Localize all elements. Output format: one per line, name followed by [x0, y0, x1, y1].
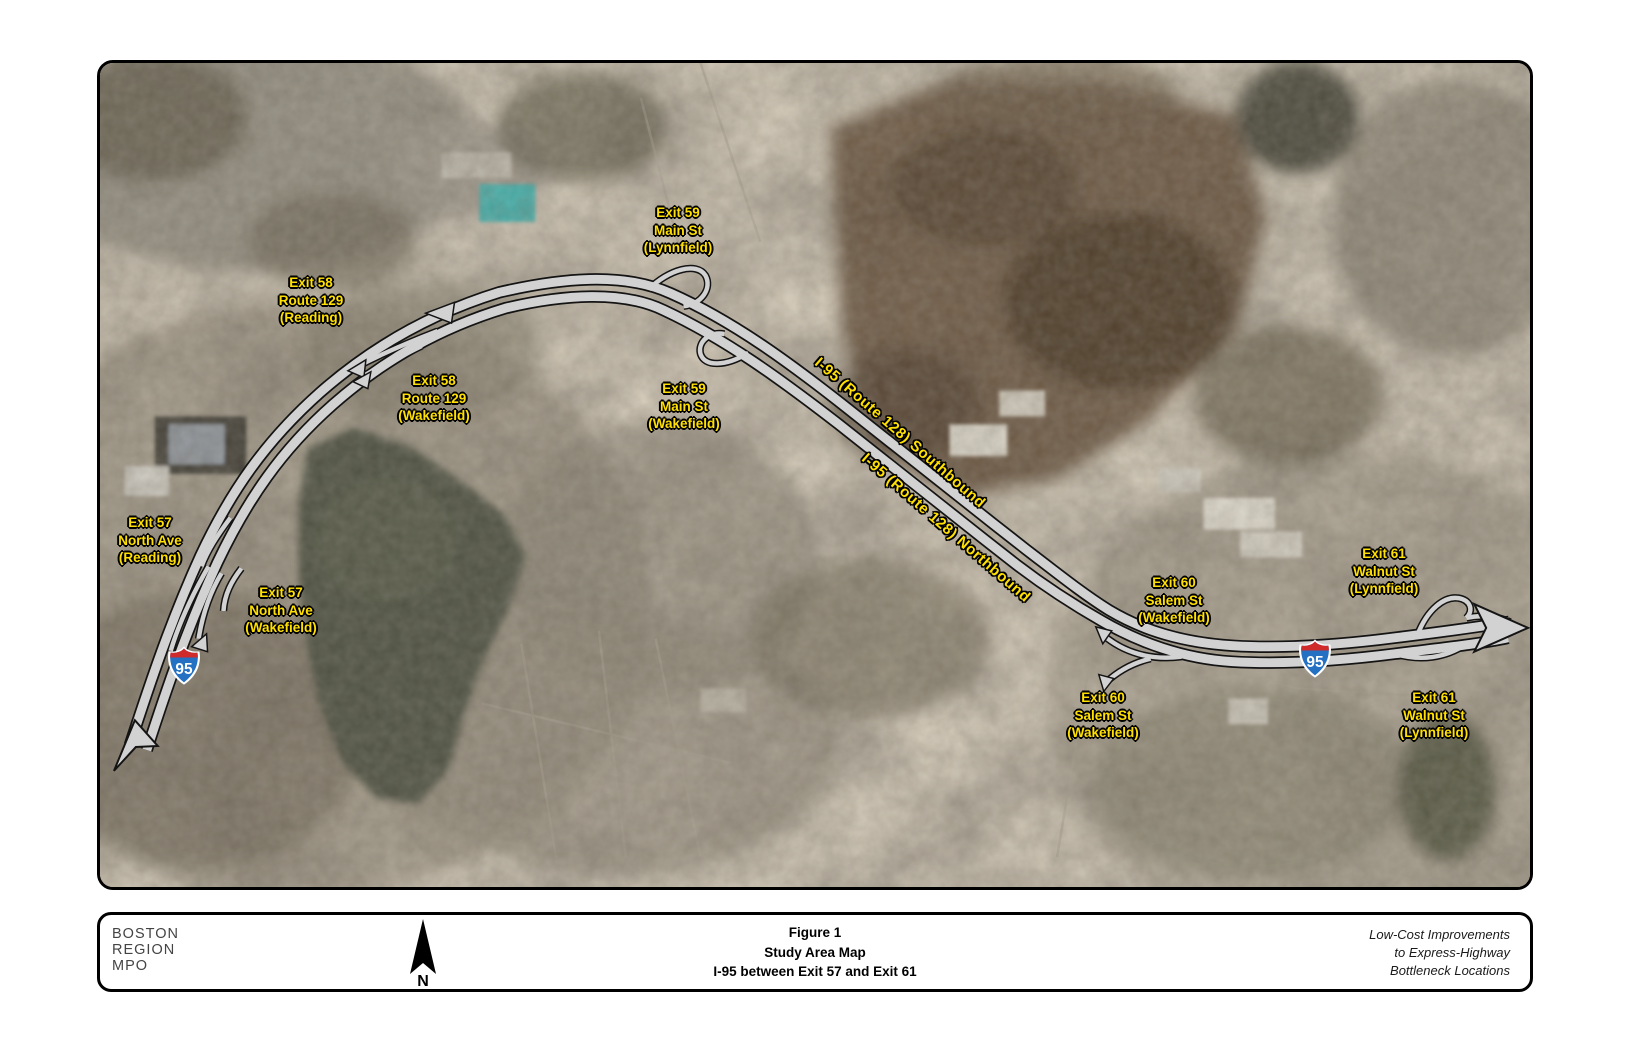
- figure-title-line: Study Area Map: [100, 943, 1530, 963]
- footer-bar: BOSTON REGION MPO N Figure 1 Study Area …: [97, 912, 1533, 992]
- figure-title: Figure 1 Study Area Map I-95 between Exi…: [100, 923, 1530, 982]
- figure-page: I-95 (Route 128) SouthboundI-95 (Route 1…: [0, 0, 1632, 1056]
- figure-title-line: I-95 between Exit 57 and Exit 61: [100, 962, 1530, 982]
- project-note-line: Bottleneck Locations: [1369, 962, 1510, 980]
- figure-title-line: Figure 1: [100, 923, 1530, 943]
- map-frame: [97, 60, 1533, 890]
- project-note-line: Low-Cost Improvements: [1369, 926, 1510, 944]
- project-note-line: to Express-Highway: [1369, 944, 1510, 962]
- aerial-map-image: [100, 63, 1530, 887]
- project-note: Low-Cost Improvements to Express-Highway…: [1369, 926, 1510, 980]
